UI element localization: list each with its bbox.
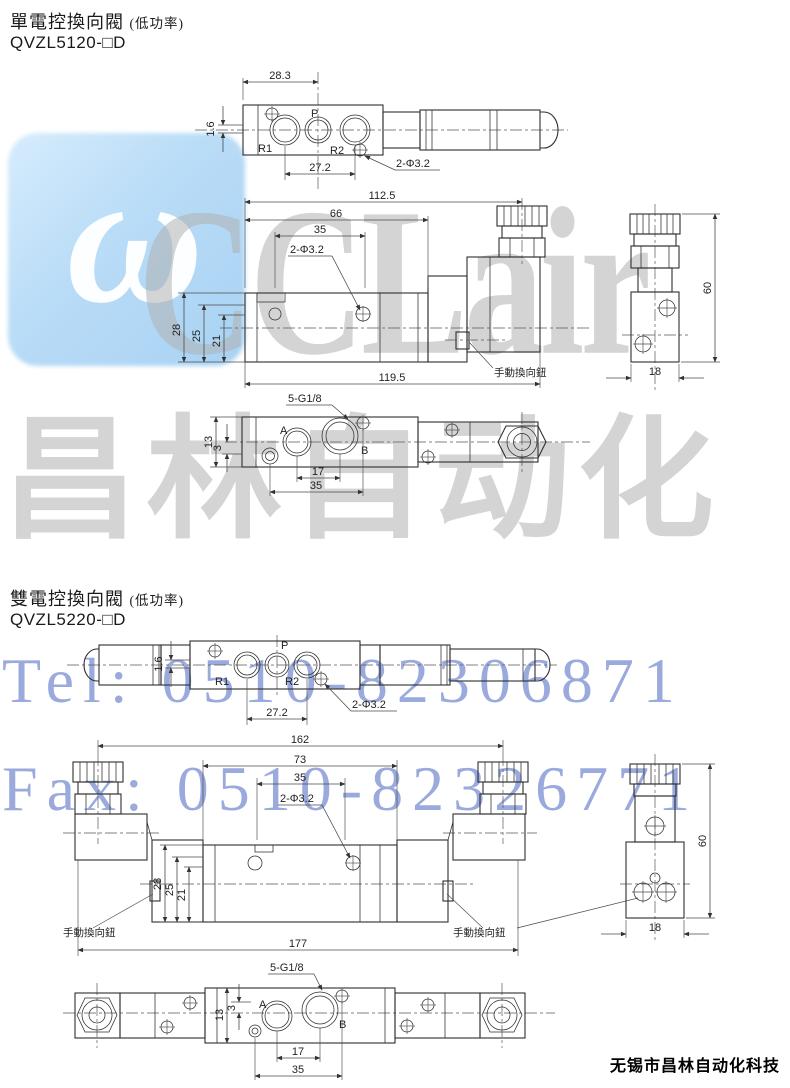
hole-callout: 2-Φ3.2	[325, 684, 397, 711]
hole-callout: 2-Φ3.2	[288, 244, 360, 310]
section2-note: (低功率)	[130, 593, 185, 608]
section1-note: (低功率)	[130, 16, 185, 31]
svg-text:35: 35	[294, 772, 306, 784]
dim-35: 35	[255, 1002, 342, 1080]
dim-18: 18	[601, 920, 709, 938]
manual-override-callout-left: 手動換向鈕	[63, 894, 153, 939]
port-a-label: A	[280, 425, 288, 437]
thread-callout: 5-G1/8	[286, 393, 348, 419]
hole-callout: 2-Φ3.2	[278, 793, 350, 858]
section1-title: 單電控換向閥	[10, 12, 124, 32]
left-end-block	[75, 993, 205, 1038]
section1-heading: 單電控換向閥 (低功率)	[10, 8, 184, 34]
manual-override-callout-right: 手動換向鈕	[447, 894, 638, 939]
dim-112-5: 112.5	[245, 190, 522, 288]
svg-text:66: 66	[330, 208, 342, 220]
solenoid-and-connector	[428, 206, 547, 362]
single-valve-bottom-view-drawing: A B 5-G1/8 13 3	[170, 390, 600, 530]
svg-text:2-Φ3.2: 2-Φ3.2	[352, 699, 386, 711]
svg-text:60: 60	[702, 282, 714, 294]
port-a-label: A	[259, 999, 267, 1011]
dim-28-25-21: 28 25 21	[171, 293, 245, 362]
svg-text:13: 13	[214, 1009, 226, 1021]
side-view: 60 18	[606, 204, 720, 392]
hole-callout: 2-Φ3.2	[365, 156, 440, 170]
dim-3: 3	[212, 424, 242, 472]
dim-28-3: 28.3	[243, 70, 318, 100]
dim-60: 60	[682, 764, 715, 918]
valve-body-outline	[205, 988, 395, 1043]
svg-text:177: 177	[289, 938, 307, 950]
svg-text:21: 21	[176, 889, 188, 901]
port-b-label: B	[339, 1019, 346, 1031]
svg-text:2-Φ3.2: 2-Φ3.2	[396, 158, 430, 170]
dim-3: 3	[226, 984, 251, 1030]
svg-text:18: 18	[649, 366, 661, 378]
svg-text:35: 35	[310, 480, 322, 492]
double-valve-bottom-view-drawing: A B 5-G1/8 13 3	[55, 958, 565, 1086]
single-valve-top-view-drawing: R1 P R2 28.3 1.6 27.2 2-Φ3.2	[170, 66, 600, 198]
valve-body-outline	[245, 293, 428, 362]
svg-text:2-Φ3.2: 2-Φ3.2	[280, 793, 314, 805]
svg-text:27.2: 27.2	[266, 707, 287, 719]
right-coil-connector	[397, 762, 528, 922]
dim-35: 35	[257, 772, 345, 840]
svg-text:17: 17	[292, 1046, 304, 1058]
section2-title: 雙電控換向閥	[10, 589, 124, 609]
section2-model: QVZL5220-□D	[10, 610, 126, 630]
dim-1-6: 1.6	[153, 641, 190, 687]
port-p-label: P	[281, 640, 288, 652]
svg-text:28: 28	[171, 324, 183, 336]
svg-text:3: 3	[226, 1005, 238, 1011]
dim-177: 177	[78, 860, 518, 956]
port-r2-label: R2	[285, 676, 299, 688]
section2-heading: 雙電控換向閥 (低功率)	[10, 585, 184, 611]
svg-text:25: 25	[191, 330, 203, 342]
svg-text:35: 35	[314, 224, 326, 236]
dim-27-2: 27.2	[285, 146, 355, 180]
svg-text:28.3: 28.3	[269, 70, 290, 82]
catalog-page: ω CCLair 昌林自动化 Tel: 0510-82306871 Fax: 0…	[0, 0, 790, 1088]
dim-66: 66	[245, 208, 428, 288]
port-r1-label: R1	[215, 676, 229, 688]
valve-body-outline	[203, 845, 397, 922]
svg-text:1.6: 1.6	[153, 656, 165, 671]
valve-body-outline	[242, 415, 418, 467]
svg-text:27.2: 27.2	[309, 162, 330, 174]
dim-60: 60	[681, 214, 720, 362]
svg-text:112.5: 112.5	[369, 190, 396, 202]
svg-text:35: 35	[292, 1064, 304, 1076]
manual-override-callout: 手動換向鈕	[469, 342, 547, 379]
single-valve-front-side-view-drawing: 112.5 66 35 2-Φ3.2 28 25 21	[160, 192, 790, 398]
svg-text:119.5: 119.5	[379, 372, 406, 384]
extension-block	[418, 422, 546, 465]
svg-text:73: 73	[294, 754, 306, 766]
svg-text:手動換向鈕: 手動換向鈕	[453, 926, 506, 939]
port-r2-label: R2	[330, 145, 344, 157]
port-r1-label: R1	[258, 143, 272, 155]
section1-model: QVZL5120-□D	[10, 33, 126, 53]
right-end-block	[395, 993, 525, 1038]
dim-1-6: 1.6	[205, 106, 243, 152]
svg-text:3: 3	[212, 445, 224, 451]
dim-17: 17	[297, 454, 340, 482]
svg-text:手動換向鈕: 手動換向鈕	[494, 366, 547, 379]
svg-text:28: 28	[152, 878, 164, 890]
dim-162: 162	[98, 734, 503, 754]
svg-text:60: 60	[697, 835, 709, 847]
svg-text:17: 17	[312, 466, 324, 478]
dim-13: 13	[214, 988, 227, 1043]
dim-28-25-21: 28 25 21	[152, 845, 203, 922]
svg-text:1.6: 1.6	[205, 121, 217, 136]
svg-text:2-Φ3.2: 2-Φ3.2	[290, 244, 324, 256]
svg-text:21: 21	[211, 335, 223, 347]
footer-company-name: 无锡市昌林自动化科技	[610, 1052, 780, 1076]
double-valve-front-side-view-drawing: 162 73 35 2-Φ3.2 28 25 21	[55, 726, 790, 966]
thread-callout: 5-G1/8	[268, 962, 322, 990]
svg-text:162: 162	[291, 734, 309, 746]
svg-text:手動換向鈕: 手動換向鈕	[63, 926, 116, 939]
dim-35: 35	[270, 429, 363, 496]
svg-text:5-G1/8: 5-G1/8	[270, 962, 304, 974]
port-b-label: B	[361, 445, 368, 457]
side-view: 60 18	[601, 754, 715, 940]
port-p-label: P	[311, 108, 318, 120]
dim-17: 17	[277, 1028, 320, 1062]
svg-text:18: 18	[649, 922, 661, 934]
svg-text:5-G1/8: 5-G1/8	[288, 393, 322, 405]
svg-text:25: 25	[164, 884, 176, 896]
